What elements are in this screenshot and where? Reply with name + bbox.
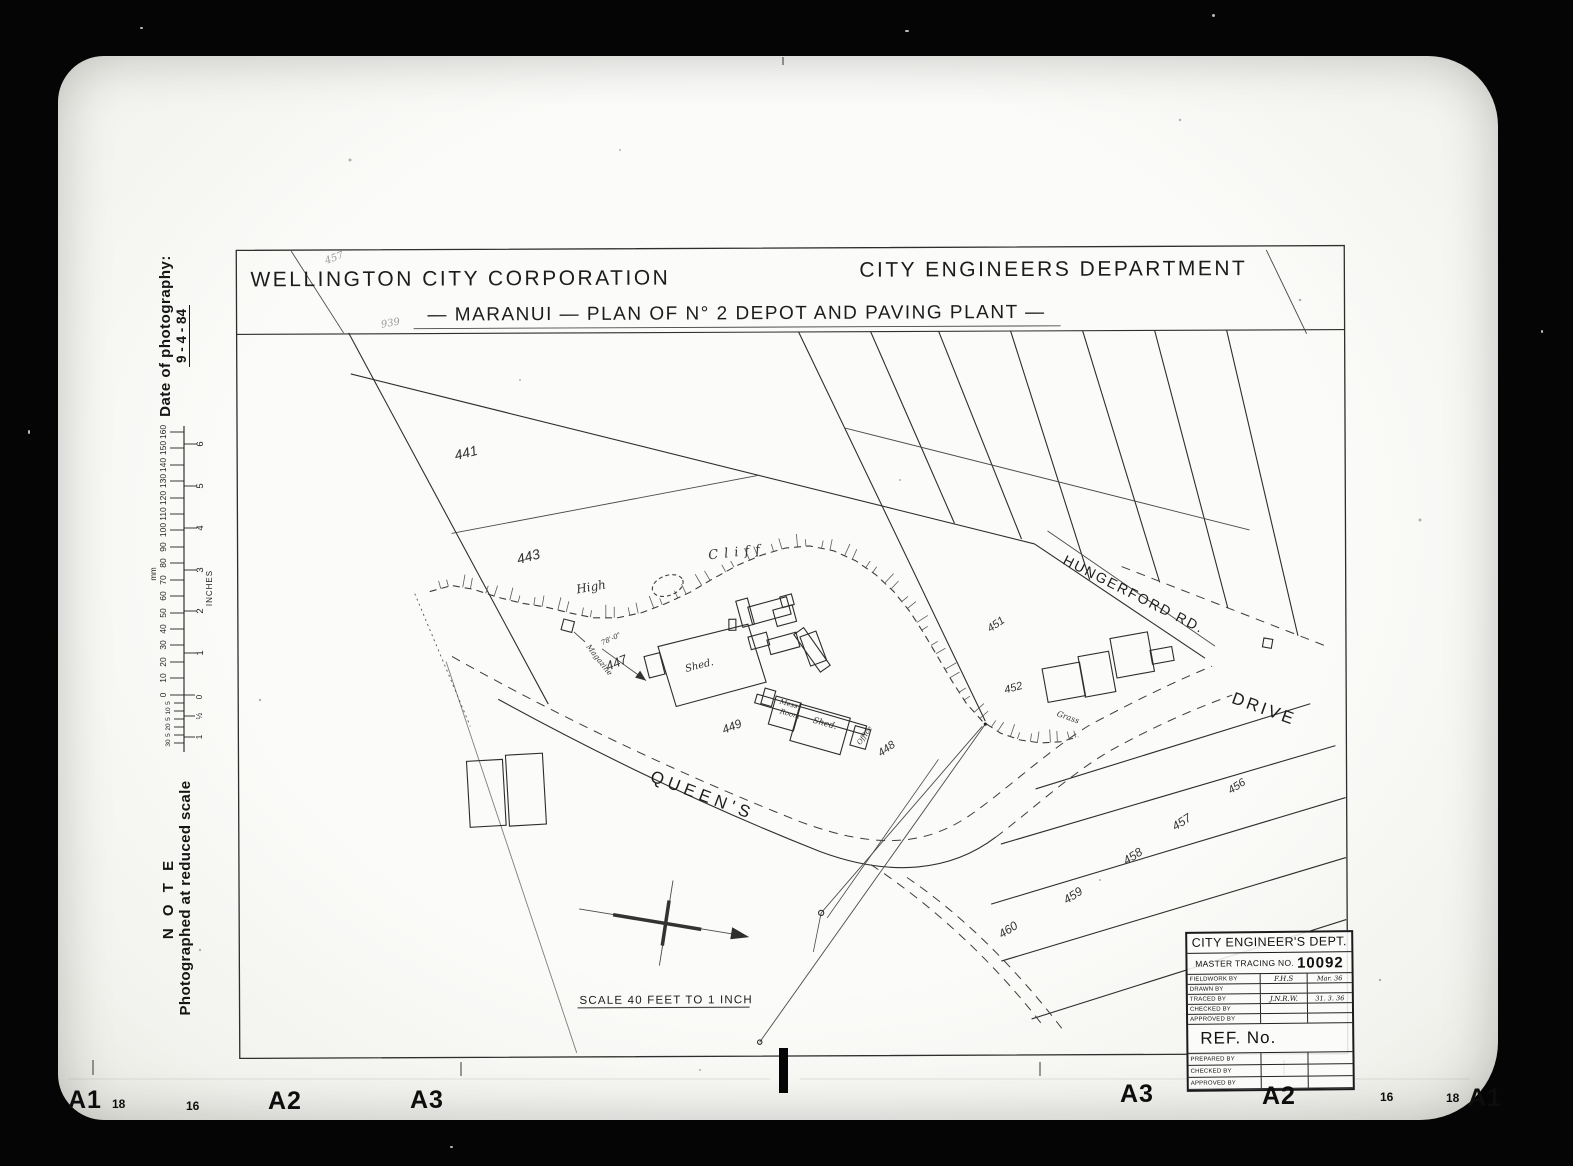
ruler-mm-label: 150 bbox=[158, 441, 168, 455]
lot-459: 459 bbox=[1061, 884, 1086, 907]
pencil-note: 939 bbox=[380, 316, 401, 330]
frame-marker-a3-left: A3 bbox=[410, 1086, 444, 1115]
ruler-mm-minor: 10 bbox=[165, 707, 172, 715]
lot-456: 456 bbox=[1226, 776, 1249, 797]
lot-451: 451 bbox=[985, 614, 1007, 634]
queens-street-label: QUEEN'S bbox=[648, 767, 758, 824]
scale-note: SCALE 40 FEET TO 1 INCH bbox=[578, 994, 753, 1008]
title-block: CITY ENGINEER'S DEPT. Master Tracing No.… bbox=[1185, 930, 1355, 1092]
lot-460: 460 bbox=[996, 918, 1021, 941]
master-tracing-number: 10092 bbox=[1297, 954, 1344, 971]
survey-lines bbox=[756, 723, 988, 1045]
ruler-mm-label: 40 bbox=[158, 624, 168, 634]
ruler-mm-label: 20 bbox=[158, 657, 168, 667]
slip-outline bbox=[649, 571, 686, 601]
row-date bbox=[1309, 1064, 1353, 1075]
ruler-mm-label: 0 bbox=[158, 692, 168, 697]
ruler-mm-minor: 5 bbox=[165, 701, 172, 705]
frame-marker-a2-right: A2 bbox=[1262, 1082, 1296, 1111]
ruler-mm-unit: mm bbox=[149, 567, 158, 581]
mess-room-label-2: Room bbox=[778, 707, 801, 721]
cliff-label: Cliff bbox=[708, 542, 767, 563]
row-label: Prepared by bbox=[1188, 1053, 1261, 1065]
road-lines bbox=[452, 653, 1234, 1033]
ruler-inch-label: 4 bbox=[195, 525, 206, 530]
row-date: Mar. 36 bbox=[1308, 973, 1352, 982]
ruler-inch-zero: 0 bbox=[195, 694, 204, 699]
ruler-mm-minor: 30 bbox=[165, 739, 172, 747]
ruler-mm-label: 120 bbox=[158, 491, 168, 505]
depot-buildings bbox=[466, 592, 1175, 827]
row-date bbox=[1308, 983, 1352, 992]
row-date bbox=[1308, 1013, 1352, 1022]
row-date bbox=[1309, 1076, 1353, 1087]
drive-street-label: DRIVE bbox=[1229, 689, 1298, 730]
shed-label: Shed. bbox=[812, 716, 838, 732]
parcel-boundary-lines bbox=[349, 329, 1332, 1054]
note-body: Photographed at reduced scale bbox=[177, 762, 194, 1034]
reduced-scale-note: N O T E Photographed at reduced scale bbox=[160, 762, 194, 1034]
ruler-mm-label: 130 bbox=[158, 474, 168, 488]
ruler-mm-label: 160 bbox=[158, 425, 168, 439]
ruler-mm-label: 140 bbox=[158, 458, 168, 472]
frame-marker-16-right: 16 bbox=[1380, 1090, 1393, 1104]
row-date bbox=[1308, 1052, 1352, 1063]
scale-text: SCALE 40 FEET TO 1 INCH bbox=[580, 994, 753, 1007]
ruler-mm-label: 60 bbox=[158, 591, 168, 601]
sheet-border bbox=[236, 246, 1348, 1059]
frame-marker-a3-right: A3 bbox=[1120, 1080, 1154, 1109]
row-initials bbox=[1261, 1014, 1308, 1023]
lot-452: 452 bbox=[1003, 680, 1024, 696]
north-arrow bbox=[579, 880, 749, 966]
frame-marker-a1-right: A1 bbox=[1468, 1084, 1502, 1113]
ruler-mm-label: 10 bbox=[158, 673, 168, 683]
row-label: Approved by bbox=[1188, 1014, 1261, 1024]
ruler-mm-minor: 5 bbox=[165, 717, 172, 721]
row-label: Traced by bbox=[1188, 994, 1261, 1004]
grass-label: Grass bbox=[1056, 709, 1081, 725]
department-title: CITY ENGINEERS DEPARTMENT bbox=[859, 257, 1247, 282]
master-tracing-row: Master Tracing No. 10092 bbox=[1187, 952, 1351, 975]
ruler-mm-label: 110 bbox=[158, 507, 168, 521]
ruler-mm-label: 50 bbox=[158, 608, 168, 618]
frame-marker-a2-left: A2 bbox=[268, 1087, 302, 1116]
row-label: Fieldwork by bbox=[1188, 974, 1261, 984]
row-label: Approved by bbox=[1189, 1077, 1262, 1089]
ruler-inch-label: 6 bbox=[195, 441, 206, 446]
master-tracing-label: Master Tracing No. bbox=[1195, 958, 1294, 969]
title-block-department: CITY ENGINEER'S DEPT. bbox=[1187, 932, 1351, 954]
row-initials bbox=[1261, 1004, 1308, 1013]
row-label: Drawn by bbox=[1188, 984, 1261, 994]
lot-449: 449 bbox=[720, 716, 744, 737]
row-label: Checked by bbox=[1189, 1065, 1262, 1077]
photo-date-label: Date of photography: bbox=[157, 248, 174, 424]
ruler-mm-minor: 5 bbox=[165, 733, 172, 737]
note-heading: N O T E bbox=[160, 762, 177, 1034]
lot-441: 441 bbox=[453, 442, 480, 463]
row-initials: F.H.S bbox=[1261, 974, 1308, 983]
ruler-inches-unit: INCHES bbox=[205, 570, 214, 606]
ref-number-box: REF. No. bbox=[1188, 1023, 1352, 1054]
frame-marker-18-right: 18 bbox=[1446, 1091, 1459, 1105]
frame-marker-18-left: 18 bbox=[112, 1097, 125, 1111]
ruler-mm-label: 80 bbox=[158, 558, 168, 568]
photo-date-note: Date of photography: 9 - 4 - 84 bbox=[157, 248, 189, 424]
ruler-inch-label: 2 bbox=[195, 608, 206, 613]
ruler-mm-label: 30 bbox=[158, 640, 168, 650]
row-date bbox=[1308, 1003, 1352, 1012]
plan-subtitle: — MARANUI — PLAN OF N° 2 DEPOT AND PAVIN… bbox=[427, 302, 1045, 326]
row-initials: J.N.R.W. bbox=[1261, 994, 1308, 1003]
ruler-mm-minor: 20 bbox=[165, 723, 172, 731]
row-initials bbox=[1261, 1053, 1308, 1064]
high-label: High bbox=[574, 577, 607, 596]
ruler-inch-label: 1 bbox=[195, 650, 206, 655]
row-label: Checked by bbox=[1188, 1004, 1261, 1014]
scanned-plan-page: WELLINGTON CITY CORPORATION CITY ENGINEE… bbox=[0, 0, 1573, 1166]
hungerford-road-label: HUNGERFORD RD. bbox=[1061, 552, 1208, 637]
shed-dimension-label: 78'-0" bbox=[600, 631, 622, 647]
reduction-ruler: 160 150 140 130 120 110 100 90 80 70 60 … bbox=[149, 425, 214, 752]
photo-date-value: 9 - 4 - 84 bbox=[174, 305, 190, 367]
row-initials bbox=[1261, 984, 1308, 993]
lot-numbers: 441 443 447 449 448 451 452 456 457 458 … bbox=[453, 439, 1250, 944]
ruler-inch-one: 1 bbox=[195, 734, 204, 739]
ruler-inch-label: 5 bbox=[195, 483, 206, 488]
lot-448: 448 bbox=[876, 738, 899, 759]
row-date: 31. 3. 36 bbox=[1308, 993, 1352, 1002]
office-label: Office bbox=[855, 725, 874, 747]
magazine-building bbox=[561, 619, 574, 632]
ruler-inch-half: ½ bbox=[195, 712, 204, 719]
row-initials bbox=[1262, 1065, 1309, 1076]
corporation-title: WELLINGTON CITY CORPORATION bbox=[250, 267, 670, 292]
ruler-mm-label: 90 bbox=[158, 542, 168, 552]
frame-marker-a1-left: A1 bbox=[68, 1086, 102, 1115]
pencil-note: 457 bbox=[323, 250, 346, 267]
lot-443: 443 bbox=[515, 545, 542, 567]
ruler-mm-label: 100 bbox=[158, 523, 168, 537]
ruler-mm-label: 70 bbox=[158, 575, 168, 585]
main-shed-label: Shed. bbox=[684, 657, 715, 675]
frame-marker-16-left: 16 bbox=[186, 1099, 199, 1113]
lot-457: 457 bbox=[1169, 810, 1195, 833]
